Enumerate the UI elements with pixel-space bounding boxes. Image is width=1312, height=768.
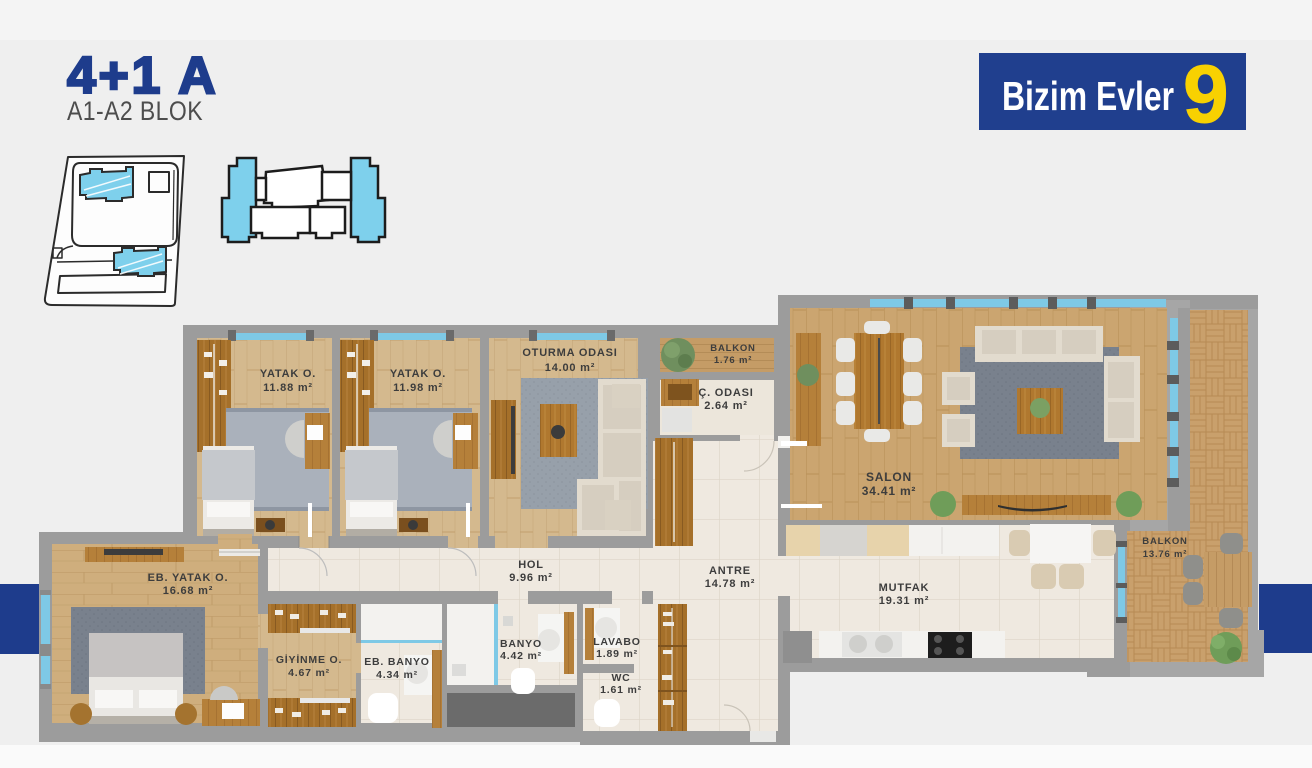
svg-text:1.76 m²: 1.76 m² bbox=[714, 355, 752, 366]
svg-text:14.00 m²: 14.00 m² bbox=[545, 362, 595, 374]
svg-text:SALON: SALON bbox=[866, 470, 912, 484]
svg-text:19.31 m²: 19.31 m² bbox=[879, 595, 929, 607]
svg-text:YATAK O.: YATAK O. bbox=[260, 368, 316, 380]
svg-text:9: 9 bbox=[1183, 49, 1229, 140]
svg-text:4.42 m²: 4.42 m² bbox=[500, 650, 542, 662]
svg-text:1.89 m²: 1.89 m² bbox=[596, 648, 638, 660]
svg-text:4.34 m²: 4.34 m² bbox=[376, 669, 418, 681]
svg-text:1.61 m²: 1.61 m² bbox=[600, 684, 642, 696]
svg-text:BANYO: BANYO bbox=[500, 638, 542, 650]
svg-text:Bizim Evler: Bizim Evler bbox=[1002, 73, 1174, 119]
svg-text:HOL: HOL bbox=[518, 559, 544, 571]
svg-text:2.64 m²: 2.64 m² bbox=[704, 400, 748, 412]
svg-text:ANTRE: ANTRE bbox=[709, 565, 751, 577]
svg-text:11.88 m²: 11.88 m² bbox=[263, 382, 313, 394]
svg-text:BALKON: BALKON bbox=[710, 343, 755, 354]
svg-text:GİYİNME O.: GİYİNME O. bbox=[276, 653, 342, 666]
svg-text:EB. YATAK O.: EB. YATAK O. bbox=[148, 572, 229, 584]
svg-text:13.76 m²: 13.76 m² bbox=[1143, 549, 1187, 560]
svg-text:WC: WC bbox=[611, 672, 630, 684]
svg-text:34.41 m²: 34.41 m² bbox=[862, 484, 916, 498]
svg-text:YATAK O.: YATAK O. bbox=[390, 368, 446, 380]
svg-text:14.78 m²: 14.78 m² bbox=[705, 578, 755, 590]
svg-text:4.67 m²: 4.67 m² bbox=[288, 667, 330, 679]
svg-text:A1-A2 BLOK: A1-A2 BLOK bbox=[67, 96, 203, 126]
svg-text:Ç. ODASI: Ç. ODASI bbox=[698, 387, 753, 399]
svg-text:MUTFAK: MUTFAK bbox=[879, 582, 930, 594]
svg-text:LAVABO: LAVABO bbox=[593, 636, 641, 648]
svg-text:OTURMA ODASI: OTURMA ODASI bbox=[522, 347, 617, 359]
svg-text:11.98 m²: 11.98 m² bbox=[393, 382, 443, 394]
svg-text:16.68 m²: 16.68 m² bbox=[163, 585, 213, 597]
svg-text:BALKON: BALKON bbox=[1142, 536, 1187, 547]
svg-text:9.96 m²: 9.96 m² bbox=[509, 572, 553, 584]
svg-text:EB. BANYO: EB. BANYO bbox=[364, 656, 430, 668]
